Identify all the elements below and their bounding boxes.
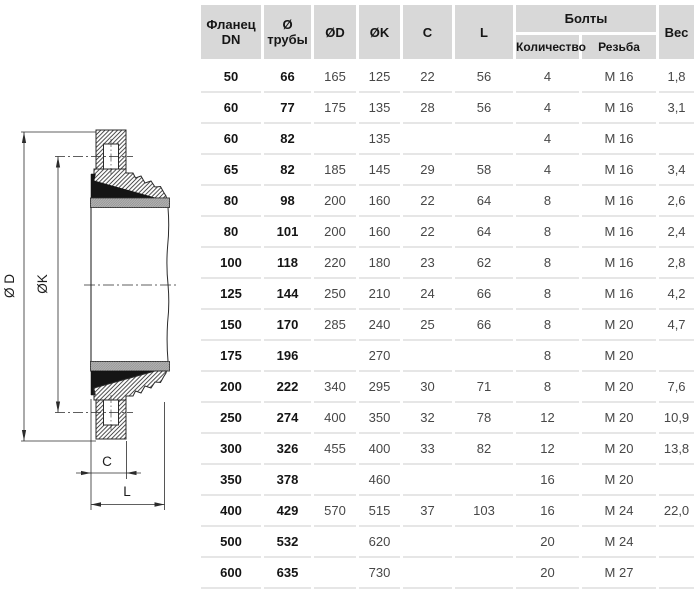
dim-outer-diameter: [21, 132, 96, 441]
gasket-texture-top: [91, 198, 170, 208]
table-cell: 60: [201, 124, 261, 155]
arrow-right-icon: [81, 471, 91, 475]
table-cell: 295: [359, 372, 400, 403]
table-row: 1751962708M 20: [201, 341, 694, 372]
table-cell: 56: [455, 93, 513, 124]
table-cell: 66: [264, 62, 311, 93]
table-cell: 4,2: [659, 279, 694, 310]
table-row: 8010120016022648M 162,4: [201, 217, 694, 248]
table-cell: 350: [359, 403, 400, 434]
table-cell: 400: [314, 403, 356, 434]
table-cell: [659, 558, 694, 589]
table-cell: 4,7: [659, 310, 694, 341]
table-cell: 135: [359, 93, 400, 124]
table-body: 506616512522564M 161,8607717513528564M 1…: [201, 62, 694, 589]
table-cell: [314, 527, 356, 558]
table-cell: 8: [516, 279, 579, 310]
table-row: 60821354M 16: [201, 124, 694, 155]
flange-section-drawing: Ø D ØK: [0, 0, 200, 607]
table-cell: M 20: [582, 341, 656, 372]
table-cell: 175: [201, 341, 261, 372]
table-cell: M 16: [582, 279, 656, 310]
table-cell: [314, 341, 356, 372]
arrow-right-icon: [155, 502, 165, 506]
table-cell: 82: [264, 124, 311, 155]
table-cell: [455, 558, 513, 589]
table-cell: 22: [403, 186, 452, 217]
dim-label-outer-diameter: Ø D: [2, 274, 17, 298]
table-cell: M 27: [582, 558, 656, 589]
arrow-left-icon: [127, 471, 137, 475]
table-header: Фланец DN Ø трубы ØD ØK C L Болты Вес Ко…: [201, 5, 694, 62]
table-row: 250274400350327812M 2010,9: [201, 403, 694, 434]
table-cell: [455, 341, 513, 372]
table-cell: 77: [264, 93, 311, 124]
table-cell: 4: [516, 62, 579, 93]
table-cell: M 24: [582, 496, 656, 527]
flange-bottom-section: [91, 362, 170, 440]
table-cell: 570: [314, 496, 356, 527]
table-cell: 400: [359, 434, 400, 465]
table-cell: 103: [455, 496, 513, 527]
table-cell: 200: [314, 217, 356, 248]
header-pipe-line1: Ø: [282, 17, 292, 32]
table-cell: 200: [314, 186, 356, 217]
table-cell: 274: [264, 403, 311, 434]
table-cell: 180: [359, 248, 400, 279]
table-cell: 65: [201, 155, 261, 186]
table-cell: 23: [403, 248, 452, 279]
table-cell: 37: [403, 496, 452, 527]
table-cell: 30: [403, 372, 452, 403]
table-cell: [314, 465, 356, 496]
table-cell: 8: [516, 310, 579, 341]
table-cell: 222: [264, 372, 311, 403]
table-cell: 78: [455, 403, 513, 434]
table-cell: 635: [264, 558, 311, 589]
gasket-texture-bottom: [91, 362, 170, 372]
table-cell: 66: [455, 279, 513, 310]
table-cell: 58: [455, 155, 513, 186]
table-cell: 270: [359, 341, 400, 372]
table-cell: 125: [201, 279, 261, 310]
table-cell: 8: [516, 186, 579, 217]
table-cell: M 16: [582, 217, 656, 248]
col-header-d: ØD: [314, 5, 356, 62]
table-cell: 62: [455, 248, 513, 279]
table-cell: 4: [516, 93, 579, 124]
table-cell: 2,6: [659, 186, 694, 217]
table-cell: M 20: [582, 310, 656, 341]
table-cell: 8: [516, 341, 579, 372]
table-cell: 300: [201, 434, 261, 465]
table-cell: 175: [314, 93, 356, 124]
table-cell: 200: [201, 372, 261, 403]
table-cell: [455, 465, 513, 496]
table-cell: 101: [264, 217, 311, 248]
arrow-down-icon: [22, 430, 26, 441]
header-flange-line1: Фланец: [206, 17, 255, 32]
table-cell: 150: [201, 310, 261, 341]
table-cell: 7,6: [659, 372, 694, 403]
table-cell: 64: [455, 186, 513, 217]
col-header-c: C: [403, 5, 452, 62]
col-header-l: L: [455, 5, 513, 62]
table-cell: 730: [359, 558, 400, 589]
arrow-left-icon: [91, 502, 101, 506]
table-cell: 22: [403, 217, 452, 248]
table-cell: 80: [201, 217, 261, 248]
table-cell: 340: [314, 372, 356, 403]
table-row: 35037846016M 20: [201, 465, 694, 496]
table-cell: [314, 124, 356, 155]
table-cell: 3,4: [659, 155, 694, 186]
dim-label-c: C: [102, 454, 112, 469]
table-cell: 1,8: [659, 62, 694, 93]
table-cell: 16: [516, 496, 579, 527]
table-cell: 326: [264, 434, 311, 465]
table-cell: 82: [264, 155, 311, 186]
table-cell: 100: [201, 248, 261, 279]
table-cell: [659, 465, 694, 496]
table-cell: 22: [403, 62, 452, 93]
table-cell: 56: [455, 62, 513, 93]
table-cell: 220: [314, 248, 356, 279]
table-cell: 429: [264, 496, 311, 527]
table-cell: [455, 124, 513, 155]
table-cell: [659, 527, 694, 558]
table-cell: M 16: [582, 186, 656, 217]
table-cell: M 16: [582, 155, 656, 186]
table-cell: 12: [516, 403, 579, 434]
table-cell: 144: [264, 279, 311, 310]
table-cell: [455, 527, 513, 558]
table-cell: M 24: [582, 527, 656, 558]
table-cell: 460: [359, 465, 400, 496]
table-cell: 32: [403, 403, 452, 434]
table-cell: 82: [455, 434, 513, 465]
table-cell: M 20: [582, 372, 656, 403]
table-cell: 2,8: [659, 248, 694, 279]
table-cell: M 16: [582, 62, 656, 93]
col-header-pipe-diameter: Ø трубы: [264, 5, 311, 62]
table-cell: 16: [516, 465, 579, 496]
table-cell: 20: [516, 527, 579, 558]
table-cell: 66: [455, 310, 513, 341]
table-cell: 250: [201, 403, 261, 434]
table-cell: 250: [314, 279, 356, 310]
table-cell: 532: [264, 527, 311, 558]
table-cell: M 16: [582, 93, 656, 124]
table-cell: 210: [359, 279, 400, 310]
table-cell: 118: [264, 248, 311, 279]
table-cell: 285: [314, 310, 356, 341]
table-cell: [403, 124, 452, 155]
header-pipe-line2: трубы: [267, 32, 308, 47]
flange-spec-sheet: Ø D ØK: [0, 0, 700, 607]
spec-table-container: Фланец DN Ø трубы ØD ØK C L Болты Вес Ко…: [198, 5, 697, 589]
table-cell: 4: [516, 124, 579, 155]
table-row: 15017028524025668M 204,7: [201, 310, 694, 341]
col-header-k: ØK: [359, 5, 400, 62]
table-cell: 196: [264, 341, 311, 372]
table-cell: 600: [201, 558, 261, 589]
table-cell: [403, 527, 452, 558]
table-cell: 13,8: [659, 434, 694, 465]
table-cell: M 20: [582, 403, 656, 434]
table-cell: 400: [201, 496, 261, 527]
table-row: 607717513528564M 163,1: [201, 93, 694, 124]
dim-label-bolt-circle: ØK: [35, 274, 50, 294]
table-cell: 20: [516, 558, 579, 589]
table-cell: 170: [264, 310, 311, 341]
header-flange-line2: DN: [222, 32, 241, 47]
table-cell: 25: [403, 310, 452, 341]
table-cell: 4: [516, 155, 579, 186]
table-cell: 10,9: [659, 403, 694, 434]
table-cell: M 20: [582, 465, 656, 496]
table-row: 50053262020M 24: [201, 527, 694, 558]
table-cell: 12: [516, 434, 579, 465]
table-cell: [403, 465, 452, 496]
table-row: 300326455400338212M 2013,8: [201, 434, 694, 465]
col-header-bolt-quantity: Количество: [516, 35, 579, 62]
table-cell: 378: [264, 465, 311, 496]
table-cell: 240: [359, 310, 400, 341]
col-header-bolt-thread: Резьба: [582, 35, 656, 62]
table-cell: 3,1: [659, 93, 694, 124]
arrow-up-icon: [22, 132, 26, 143]
table-cell: [314, 558, 356, 589]
table-cell: 50: [201, 62, 261, 93]
flange-top-section: [91, 130, 170, 208]
table-cell: 350: [201, 465, 261, 496]
table-cell: [403, 558, 452, 589]
table-cell: M 16: [582, 124, 656, 155]
table-cell: 60: [201, 93, 261, 124]
col-header-bolts: Болты: [516, 5, 656, 35]
table-cell: 8: [516, 217, 579, 248]
table-cell: 455: [314, 434, 356, 465]
table-cell: 165: [314, 62, 356, 93]
table-cell: 64: [455, 217, 513, 248]
table-row: 658218514529584M 163,4: [201, 155, 694, 186]
table-cell: 135: [359, 124, 400, 155]
pipe-body: [91, 208, 169, 362]
table-cell: 145: [359, 155, 400, 186]
table-cell: 160: [359, 186, 400, 217]
table-cell: 160: [359, 217, 400, 248]
table-row: 4004295705153710316M 2422,0: [201, 496, 694, 527]
table-cell: 24: [403, 279, 452, 310]
col-header-weight: Вес: [659, 5, 694, 62]
col-header-flange-dn: Фланец DN: [201, 5, 261, 62]
table-cell: 500: [201, 527, 261, 558]
table-cell: 22,0: [659, 496, 694, 527]
table-cell: 28: [403, 93, 452, 124]
table-cell: 71: [455, 372, 513, 403]
table-cell: 29: [403, 155, 452, 186]
table-row: 506616512522564M 161,8: [201, 62, 694, 93]
table-cell: 185: [314, 155, 356, 186]
table-cell: 8: [516, 372, 579, 403]
table-cell: 80: [201, 186, 261, 217]
dim-label-l: L: [123, 484, 131, 499]
table-cell: M 20: [582, 434, 656, 465]
table-row: 809820016022648M 162,6: [201, 186, 694, 217]
table-cell: M 16: [582, 248, 656, 279]
table-cell: 125: [359, 62, 400, 93]
table-cell: [403, 341, 452, 372]
arrow-up-icon: [56, 157, 60, 168]
table-row: 20022234029530718M 207,6: [201, 372, 694, 403]
arrow-down-icon: [56, 402, 60, 413]
flange-spec-table: Фланец DN Ø трубы ØD ØK C L Болты Вес Ко…: [198, 5, 697, 589]
table-cell: 2,4: [659, 217, 694, 248]
table-cell: 515: [359, 496, 400, 527]
table-row: 12514425021024668M 164,2: [201, 279, 694, 310]
table-cell: 8: [516, 248, 579, 279]
table-cell: 98: [264, 186, 311, 217]
table-row: 10011822018023628M 162,8: [201, 248, 694, 279]
table-row: 60063573020M 27: [201, 558, 694, 589]
table-cell: 33: [403, 434, 452, 465]
table-cell: [659, 341, 694, 372]
table-cell: 620: [359, 527, 400, 558]
table-cell: [659, 124, 694, 155]
